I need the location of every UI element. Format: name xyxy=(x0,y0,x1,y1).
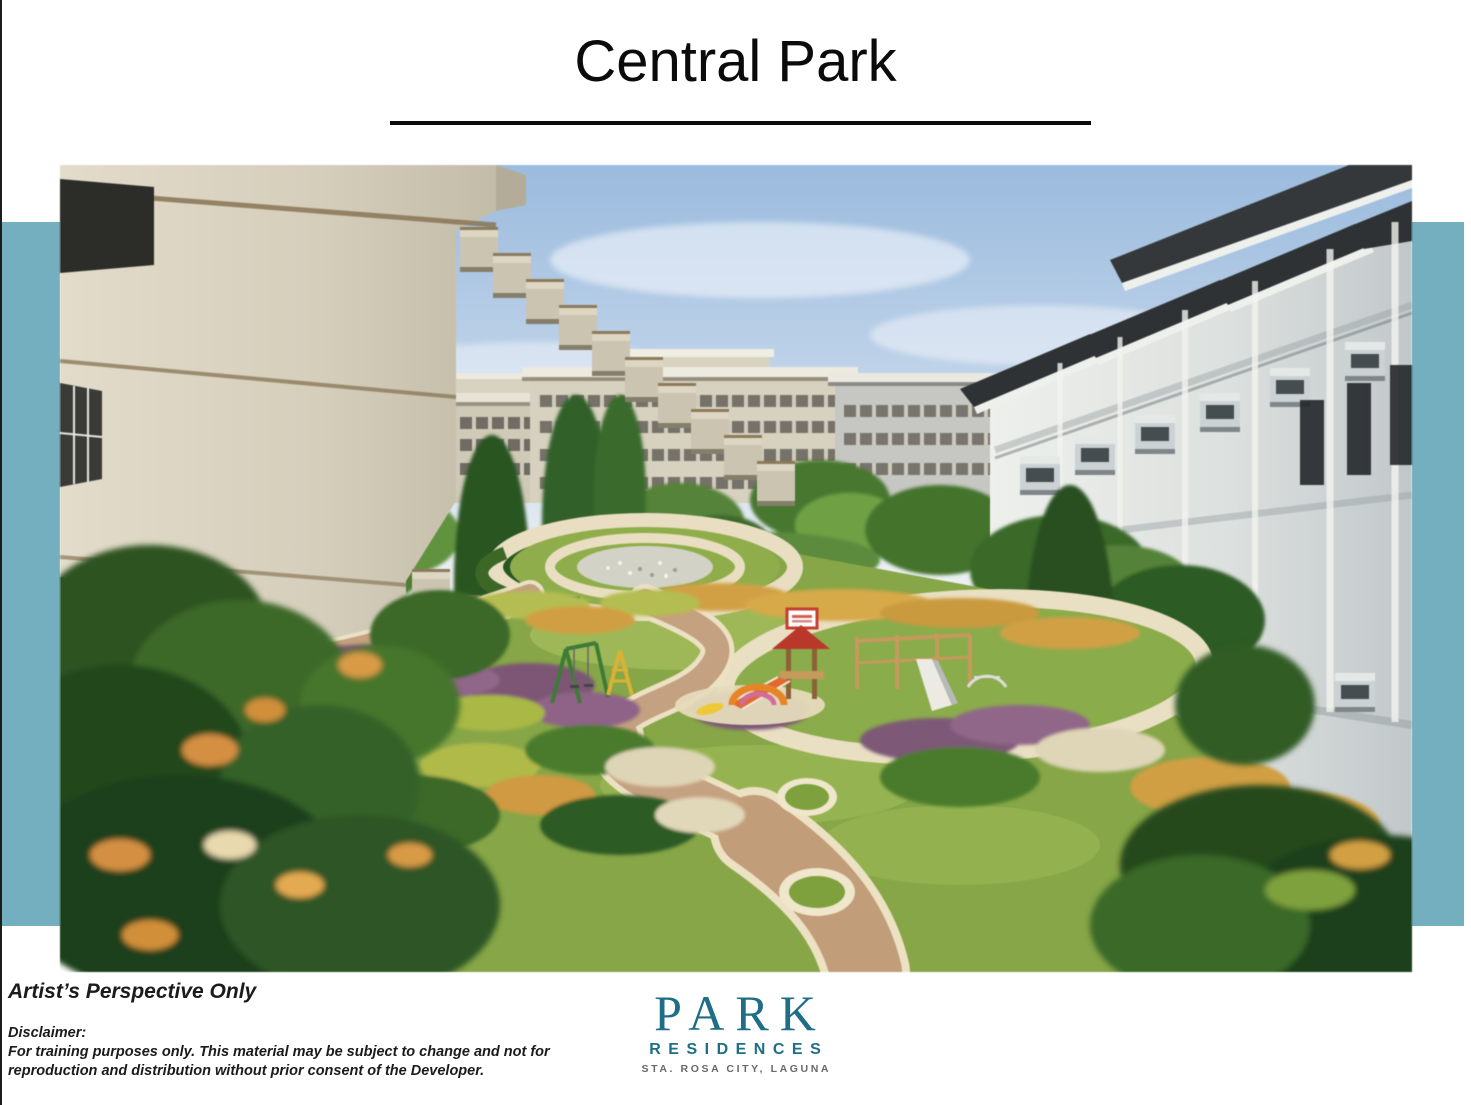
logo-location: STA. ROSA CITY, LAGUNA xyxy=(641,1063,831,1075)
disclaimer: Disclaimer: For training purposes only. … xyxy=(8,1024,550,1081)
artist-note: Artist’s Perspective Only xyxy=(8,980,256,1004)
disclaimer-line1: For training purposes only. This materia… xyxy=(8,1043,550,1062)
right-accent-bar xyxy=(1412,222,1464,926)
perspective-image xyxy=(60,165,1412,972)
logo-residences: RESIDENCES xyxy=(641,1041,836,1059)
page-title: Central Park xyxy=(0,28,1471,95)
left-accent-bar xyxy=(2,222,60,926)
logo-park: PARK xyxy=(641,988,839,1038)
brand-logo: PARK RESIDENCES STA. ROSA CITY, LAGUNA xyxy=(641,988,828,1075)
title-underline xyxy=(390,121,1091,125)
disclaimer-line2: reproduction and distribution without pr… xyxy=(8,1062,550,1081)
disclaimer-label: Disclaimer: xyxy=(8,1024,550,1043)
